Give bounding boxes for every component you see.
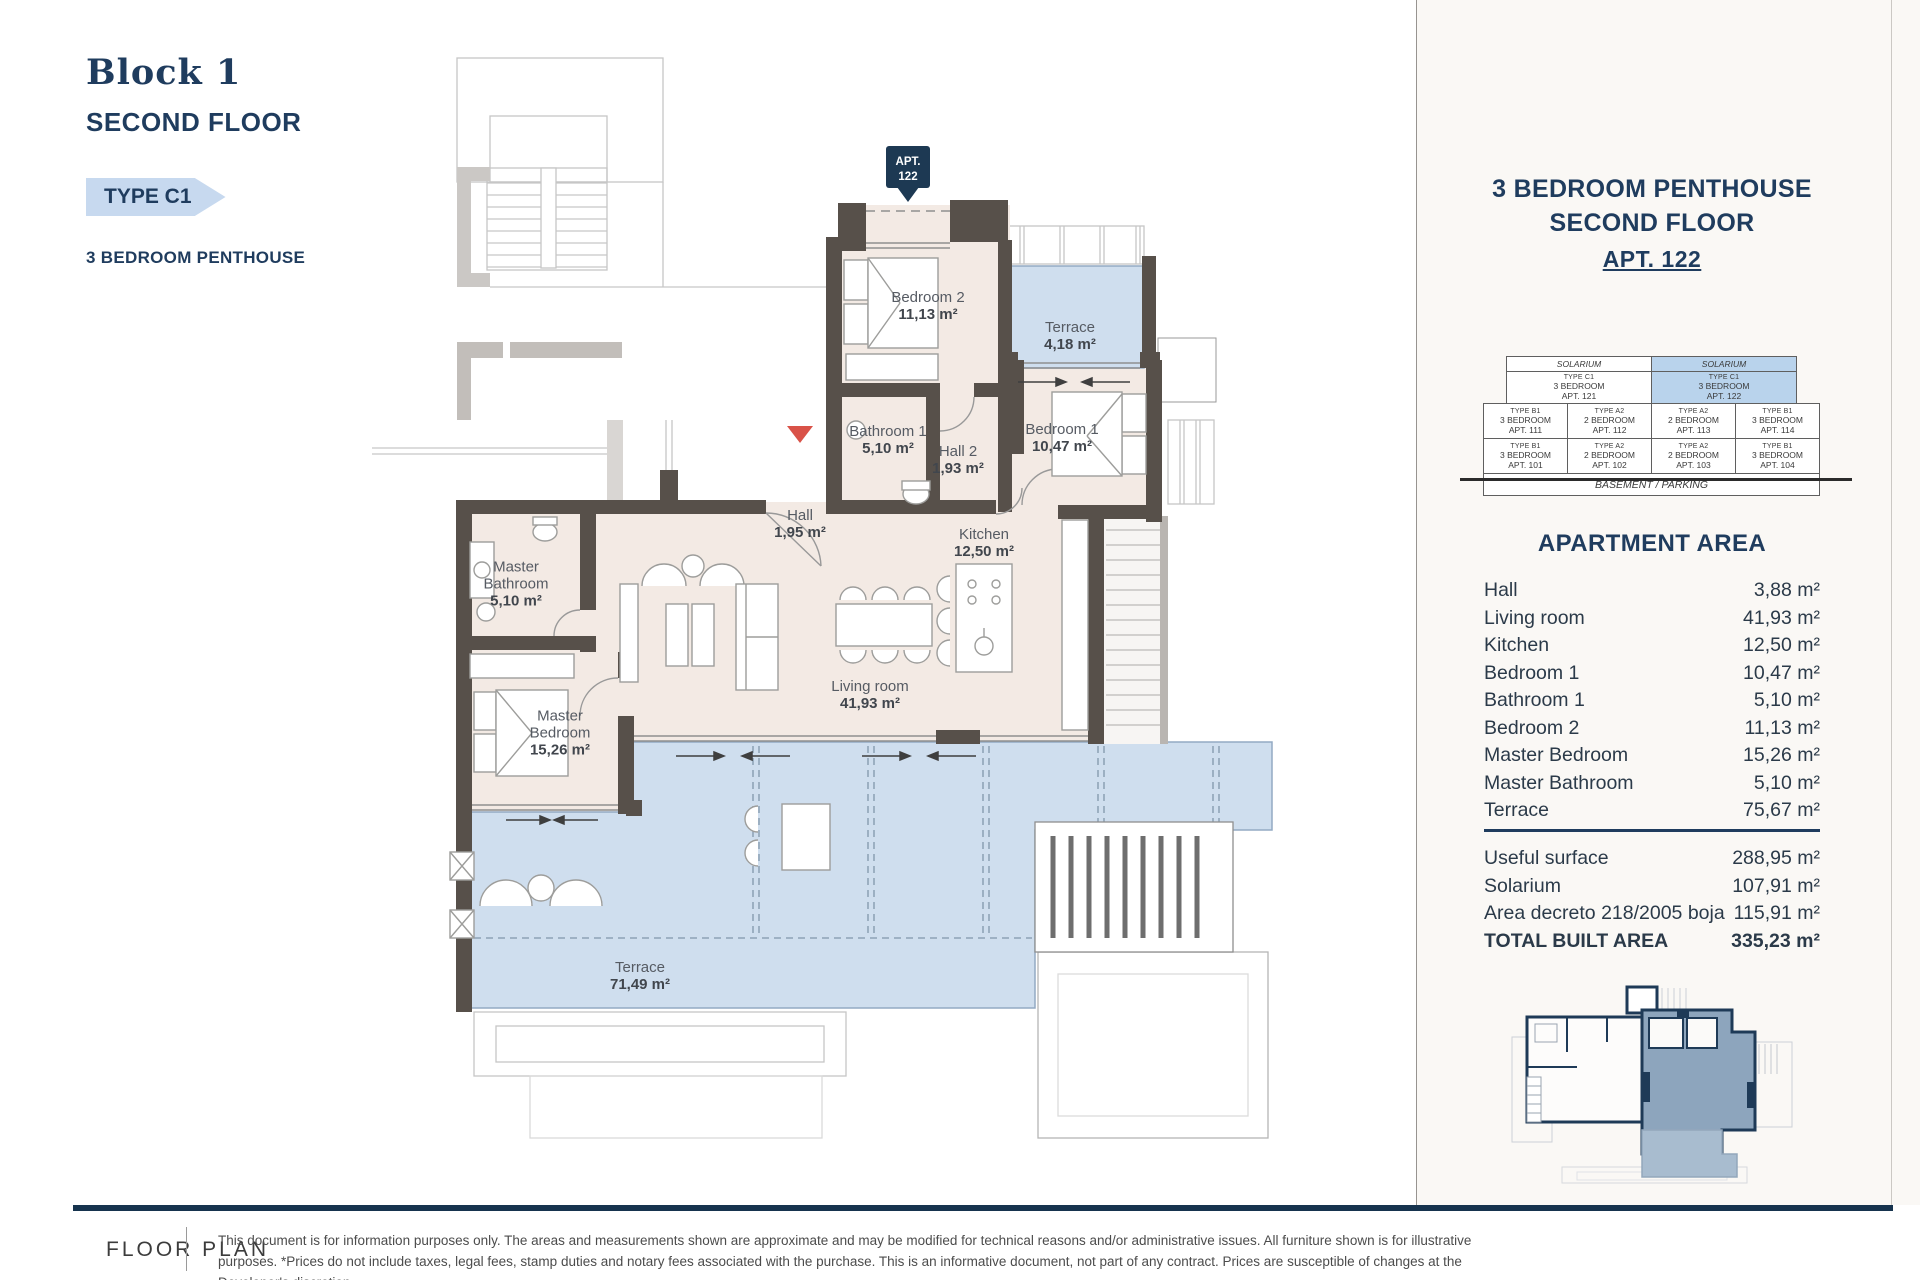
stack-solarium-left: SOLARIUM (1506, 356, 1652, 372)
sidebar-right-edge (1891, 0, 1892, 1205)
total-row: Area decreto 218/2005 boja115,91 m² (1484, 900, 1820, 928)
stack-apt-104: TYPE B1 3 BEDROOM APT. 104 (1735, 438, 1820, 474)
area-row: Kitchen12,50 m² (1484, 632, 1820, 660)
room-label-bedroom2: Bedroom 2 11,13 m² (891, 289, 964, 323)
floor-plan-drawing: APT. 122 Bedroom 2 11,13 m² Terrace 4,18… (0, 0, 1416, 1205)
stack-apt-114: TYPE B1 3 BEDROOM APT. 114 (1735, 403, 1820, 439)
footer-divider (186, 1227, 187, 1271)
entrance-marker-icon (787, 426, 813, 443)
apartment-area-heading: APARTMENT AREA (1417, 530, 1887, 558)
floor-plan-page: Block 1 SECOND FLOOR TYPE C1 3 BEDROOM P… (0, 0, 1920, 1280)
stack-apt-112: TYPE A2 2 BEDROOM APT. 112 (1567, 403, 1652, 439)
apt-flag-line2: 122 (898, 171, 917, 183)
plan-svg: APT. 122 (0, 0, 1416, 1205)
totals-divider (1484, 829, 1820, 832)
area-row: Bedroom 211,13 m² (1484, 715, 1820, 743)
room-label-terrace-big: Terrace 71,49 m² (610, 959, 670, 993)
apt-flag-line1: APT. (896, 156, 921, 168)
area-row: Living room41,93 m² (1484, 605, 1820, 633)
sidebar: 3 BEDROOM PENTHOUSE SECOND FLOOR APT. 12… (1416, 0, 1920, 1205)
room-label-bathroom1: Bathroom 1 5,10 m² (849, 423, 927, 457)
area-row: Terrace75,67 m² (1484, 797, 1820, 825)
room-label-kitchen: Kitchen 12,50 m² (954, 526, 1014, 560)
stack-apt-102: TYPE A2 2 BEDROOM APT. 102 (1567, 438, 1652, 474)
stack-apt-122-highlighted: TYPE C1 3 BEDROOM APT. 122 (1651, 371, 1797, 404)
room-label-master-bathroom: Master Bathroom 5,10 m² (464, 559, 568, 610)
stack-apt-103: TYPE A2 2 BEDROOM APT. 103 (1651, 438, 1736, 474)
total-row: Useful surface288,95 m² (1484, 845, 1820, 873)
sidebar-title: 3 BEDROOM PENTHOUSE SECOND FLOOR (1417, 172, 1887, 240)
apartment-area-list: Hall3,88 m² Living room41,93 m² Kitchen1… (1484, 577, 1820, 825)
area-row: Hall3,88 m² (1484, 577, 1820, 605)
stack-apt-113: TYPE A2 2 BEDROOM APT. 113 (1651, 403, 1736, 439)
stack-apt-121: TYPE C1 3 BEDROOM APT. 121 (1506, 371, 1652, 404)
area-row: Master Bathroom5,10 m² (1484, 770, 1820, 798)
room-label-terrace-small: Terrace 4,18 m² (1044, 319, 1096, 353)
stack-basement: BASEMENT / PARKING (1483, 473, 1820, 496)
area-row: Bedroom 110,47 m² (1484, 660, 1820, 688)
total-built-area-row: TOTAL BUILT AREA335,23 m² (1484, 928, 1820, 956)
room-label-bedroom1: Bedroom 1 10,47 m² (1025, 421, 1098, 455)
stack-ground-line (1460, 478, 1852, 481)
totals-list: Useful surface288,95 m² Solarium107,91 m… (1484, 845, 1820, 955)
building-stack-diagram: SOLARIUM SOLARIUM TYPE C1 3 BEDROOM APT.… (1484, 357, 1820, 496)
room-label-hall: Hall 1,95 m² (774, 507, 826, 541)
sidebar-title-line1: 3 BEDROOM PENTHOUSE (1417, 172, 1887, 206)
apartment-number: APT. 122 (1417, 246, 1887, 273)
area-row: Master Bedroom15,26 m² (1484, 742, 1820, 770)
total-row: Solarium107,91 m² (1484, 873, 1820, 901)
stack-apt-111: TYPE B1 3 BEDROOM APT. 111 (1483, 403, 1568, 439)
room-label-living-room: Living room 41,93 m² (831, 678, 909, 712)
stack-apt-101: TYPE B1 3 BEDROOM APT. 101 (1483, 438, 1568, 474)
apt-flag: APT. 122 (886, 146, 930, 202)
sidebar-title-line2: SECOND FLOOR (1417, 206, 1887, 240)
footer-bar (73, 1205, 1893, 1211)
room-label-master-bedroom: Master Bedroom 15,26 m² (508, 708, 612, 759)
area-row: Bathroom 15,10 m² (1484, 687, 1820, 715)
room-label-hall2: Hall 2 1,93 m² (932, 443, 984, 477)
footer-disclaimer: This document is for information purpose… (218, 1230, 1518, 1280)
building-footprint-minimap (1507, 982, 1797, 1187)
stack-solarium-right: SOLARIUM (1651, 356, 1797, 372)
